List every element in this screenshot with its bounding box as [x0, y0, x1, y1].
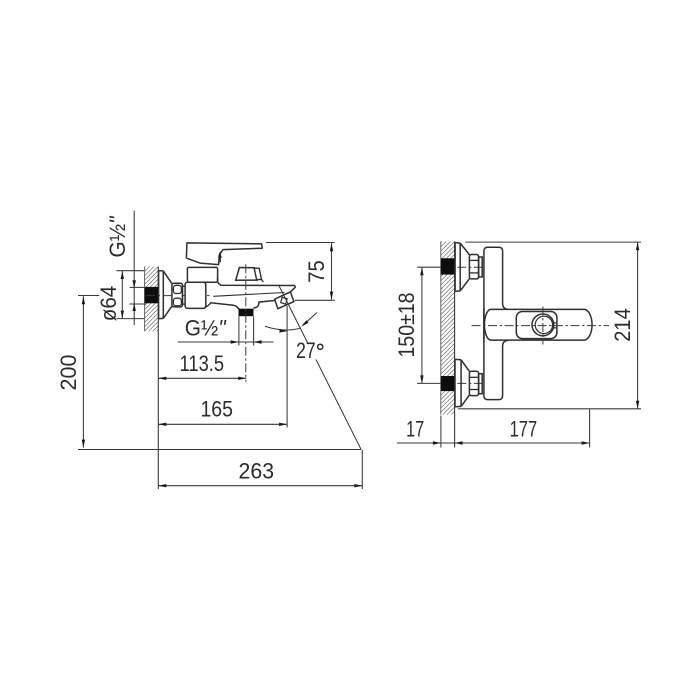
svg-text:17: 17	[406, 416, 424, 441]
svg-text:200: 200	[56, 355, 81, 391]
svg-text:27: 27	[296, 338, 316, 363]
svg-text:214: 214	[610, 308, 635, 342]
svg-text:75: 75	[304, 260, 329, 283]
svg-text:150±18: 150±18	[394, 293, 419, 358]
svg-text:165: 165	[200, 397, 233, 422]
svg-text:177: 177	[510, 416, 538, 441]
svg-text:G½": G½"	[105, 215, 130, 257]
svg-text:G½": G½"	[185, 316, 227, 341]
svg-text:263: 263	[239, 458, 275, 483]
svg-text:ø64: ø64	[96, 286, 121, 322]
svg-text:113.5: 113.5	[180, 351, 225, 376]
